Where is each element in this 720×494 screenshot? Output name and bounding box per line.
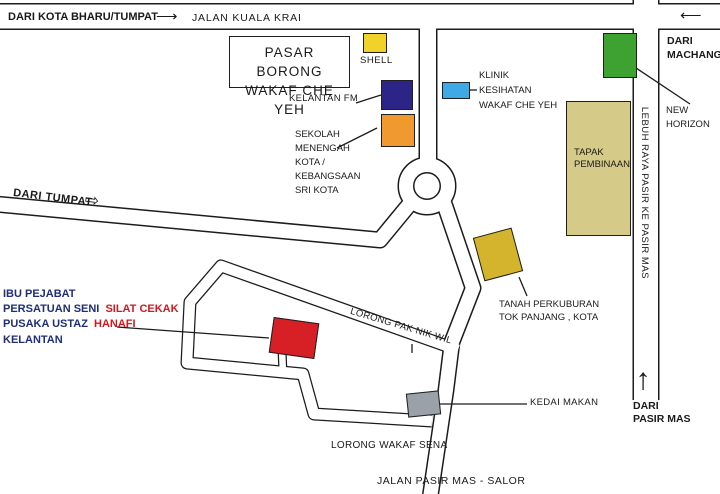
shell-box [363, 33, 387, 53]
klinik-box [442, 82, 470, 99]
tapak-pembinaan-box: TAPAK PEMBINAAN [566, 101, 631, 236]
new-horizon-box [603, 33, 637, 78]
up-arrow-icon: ↑ [632, 365, 654, 395]
pasar-borong-box: PASAR BORONG WAKAF CHE YEH [229, 36, 350, 88]
pasar-borong-label-line1: PASAR BORONG [230, 43, 349, 81]
label-jalan-kuala-krai: JALAN KUALA KRAI [192, 12, 302, 25]
label-sekolah: SEKOLAH MENENGAH KOTA / KEBANGSAAN SRI K… [295, 128, 360, 198]
label-klinik: KLINIK KESIHATAN WAKAF CHE YEH [479, 68, 557, 113]
right-arrow-icon: ⟶ [156, 9, 178, 24]
kedai-makan-box [406, 390, 441, 417]
label-dari-kota-bharu-tumpat: DARI KOTA BHARU/TUMPAT [8, 11, 158, 25]
label-kelantan-fm: KELANTAN FM [289, 93, 358, 105]
tapak-pembinaan-label: TAPAK PEMBINAAN [574, 147, 630, 171]
label-kedai-makan: KEDAI MAKAN [530, 397, 598, 409]
label-dari-machang: DARI MACHANG [667, 34, 720, 62]
label-dari-pasir-mas: DARI PASIR MAS [633, 400, 691, 426]
left-arrow-icon: ⟵ [680, 8, 702, 23]
label-shell: SHELL [360, 55, 393, 67]
sekolah-box [381, 114, 415, 147]
leader-line-tanah [519, 277, 527, 296]
label-tanah-perkuburan: TANAH PERKUBURAN TOK PANJANG , KOTA [499, 299, 599, 324]
leader-line-kelantan-fm [356, 95, 381, 103]
route-map: PASAR BORONG WAKAF CHE YEH TAPAK PEMBINA… [0, 0, 720, 494]
label-new-horizon: NEW HORIZON [666, 104, 710, 131]
label-jalan-pasir-mas-salor: JALAN PASIR MAS - SALOR [377, 475, 525, 488]
label-hq-silat-cekak: IBU PEJABAT PERSATUAN SENI SILAT CEKAK P… [3, 287, 179, 348]
open-right-arrow-icon: ⇨ [84, 191, 100, 210]
label-lebuh-raya: LEBUH RAYA PASIR KE PASIR MAS [638, 103, 650, 283]
label-lorong-wakaf-sena: LORONG WAKAF SENA [331, 440, 447, 453]
hq-silat-cekak-box [269, 317, 320, 359]
kelantan-fm-box [381, 80, 413, 110]
